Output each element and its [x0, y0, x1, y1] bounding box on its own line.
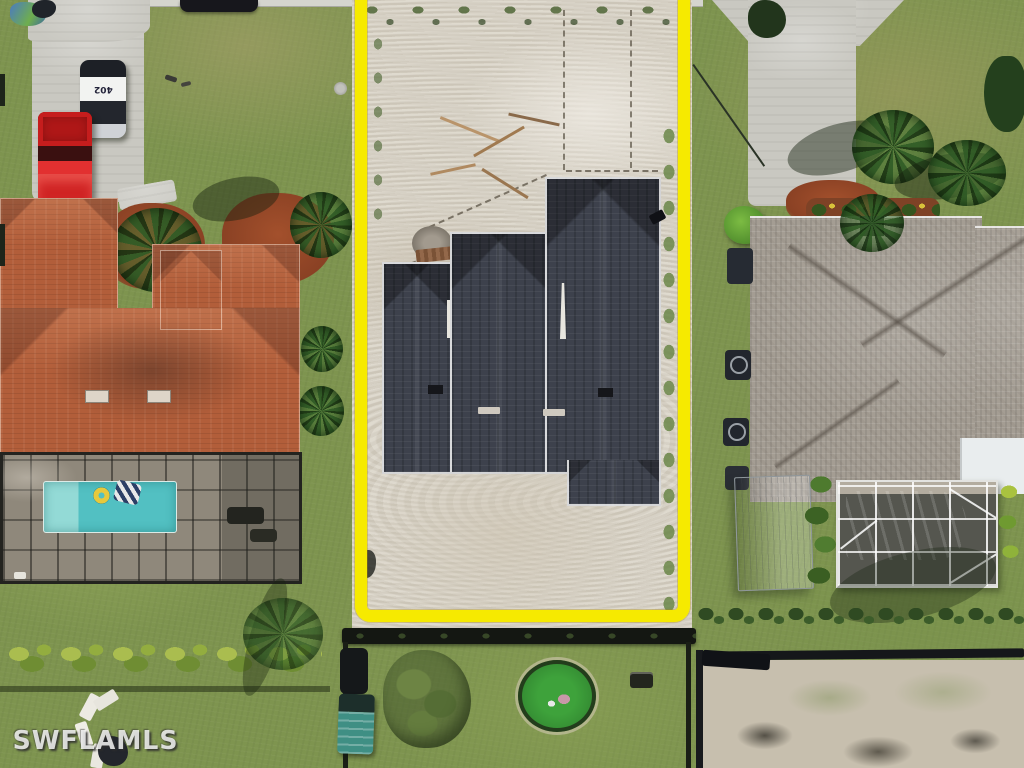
dark-bush — [748, 0, 786, 38]
palm-overhanging-roof — [840, 194, 904, 252]
utility-cover — [334, 82, 347, 95]
left-house-roof-wing — [0, 198, 118, 316]
police-car-number: 402 — [94, 84, 113, 94]
utility-pole — [0, 74, 5, 106]
bright-plants-edge — [994, 478, 1024, 570]
dark-palm-edge — [984, 56, 1024, 132]
ac-equipment — [727, 248, 753, 284]
white-object — [14, 572, 26, 579]
watermark: SWFLAMLS — [13, 726, 179, 756]
ac-fan-ring — [728, 423, 746, 441]
palm-tree — [298, 386, 344, 436]
dark-suv — [340, 648, 368, 694]
red-truck — [38, 112, 92, 206]
teal-truck — [337, 693, 375, 754]
aerial-photo: 402 — [0, 0, 1024, 768]
palm-tree — [928, 140, 1006, 206]
silt-fence-dirt — [700, 660, 1024, 768]
rear-bench — [630, 672, 653, 688]
pool-ring-float — [93, 487, 110, 504]
right-hedgerow — [694, 602, 1024, 632]
fence-post — [686, 642, 691, 768]
roof-skylight — [85, 390, 109, 403]
rear-tree — [383, 650, 471, 748]
utility-pole — [0, 224, 5, 266]
roof-skylight — [147, 390, 171, 403]
silt-fence-left — [696, 650, 703, 768]
roof-weathered-patch — [52, 318, 252, 423]
palm-tree — [243, 598, 323, 670]
rear-fence-line — [342, 628, 696, 644]
ac-fan-ring — [730, 356, 748, 374]
left-pool-enclosure — [0, 452, 302, 584]
left-pool — [43, 481, 177, 533]
palm-tree — [301, 326, 343, 372]
patio-furniture — [227, 507, 264, 524]
garden-circle — [518, 660, 596, 732]
patio-furniture — [250, 529, 277, 542]
black-car — [180, 0, 258, 12]
lot-outline — [355, 0, 690, 622]
